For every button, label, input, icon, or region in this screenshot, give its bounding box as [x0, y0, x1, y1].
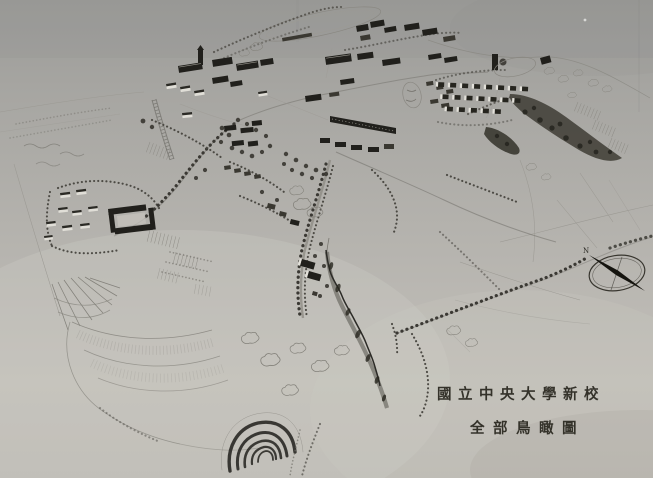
- paper-background: [0, 0, 653, 478]
- compass-north-label: N: [583, 247, 589, 255]
- photo-speck: [584, 19, 587, 22]
- title-line-2: 全部鳥瞰圖: [469, 419, 585, 437]
- title-line-1: 國立中央大學新校: [437, 385, 605, 403]
- birds-eye-view-drawing: N 國立中央大學新校 全部鳥瞰圖: [0, 0, 653, 478]
- photograph-of-campus-drawing: N 國立中央大學新校 全部鳥瞰圖: [0, 0, 653, 478]
